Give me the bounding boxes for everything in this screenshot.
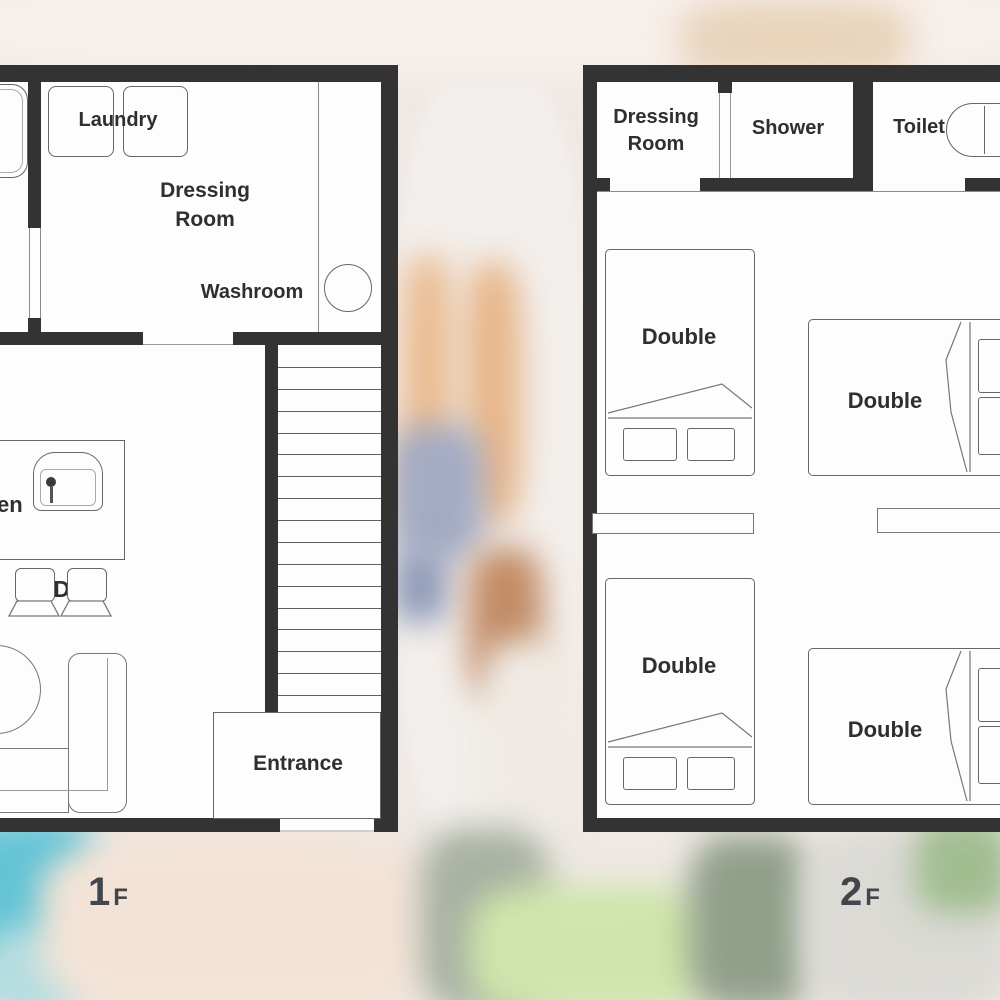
faucet-icon [46,477,56,487]
dressing-room-label-line2: Room [586,131,726,158]
door-opening [143,332,233,345]
bg-blob [40,835,440,1000]
bg-blob [915,818,1000,913]
sofa-cushion-line [107,658,108,790]
kitchen-label: Kitchen [0,492,32,518]
pillow-icon [978,397,1000,455]
dressing-room-label: Dressing Room [586,104,726,158]
wall-segment [381,65,398,832]
stair-tread [278,433,381,434]
toilet-tank-line [984,106,985,154]
dressing-room-label: Dressing Room [105,176,305,234]
chair-icon [15,568,55,602]
bg-blob [478,640,588,830]
kitchen-sink-basin [40,469,96,506]
floorplan-screenshot: Laundry Dressing Room Washroom Kitchen L… [0,0,1000,1000]
threshold-line [597,191,1000,192]
faucet-stem [50,487,53,503]
stair-tread [278,367,381,368]
pillow-icon [623,428,677,461]
floor-number: 1 [88,870,110,915]
bed-double: Double [605,249,755,476]
stair-tread [278,498,381,499]
wall-segment [0,65,398,82]
stair-tread [278,586,381,587]
bed-label: Double [815,388,955,414]
pillow-icon [687,428,735,461]
laundry-label: Laundry [40,109,196,132]
wall-segment [28,82,41,228]
partition-line [730,93,731,178]
stair-tread [278,673,381,674]
door-line [29,228,30,318]
chair-back-icon [8,600,60,617]
bg-blob [470,885,710,1000]
bed-double: Double [808,319,1000,476]
stair-tread [278,389,381,390]
washbasin-icon [324,264,372,312]
pillow-icon [687,757,735,790]
floor-number: 2 [840,870,862,915]
bg-blob [390,425,485,560]
stairwell-wall [265,332,278,714]
pillow-icon [978,339,1000,393]
toilet-icon [946,103,1000,157]
washroom-label: Washroom [152,281,352,304]
dressing-room-label-line2: Room [105,205,305,234]
wall-segment [965,178,1000,192]
stairs [278,345,381,717]
entrance-label: Entrance [228,752,368,776]
bathtub-inner-line [0,89,23,173]
stair-tread [278,629,381,630]
stair-tread [278,695,381,696]
low-shelf-icon [592,513,754,534]
bg-blob [393,548,448,623]
low-shelf-icon [877,508,1000,533]
wall-segment [700,178,873,192]
bg-blob [688,835,813,1000]
stair-tread [278,454,381,455]
wall-segment [583,818,1000,832]
entrance-door-opening [280,819,374,832]
door-line [40,228,41,318]
bed-label: Double [606,653,752,679]
bed-double: Double [605,578,755,805]
floor-label-2f: 2 F [840,870,880,915]
sofa-cushion-line [0,790,108,791]
stair-tread [278,411,381,412]
chair-icon [67,568,107,602]
stair-tread [278,608,381,609]
wall-segment [718,82,732,93]
wall-segment [853,82,873,192]
bed-label: Double [815,717,955,743]
dressing-room-label-line1: Dressing [105,176,305,205]
shower-label: Shower [733,117,843,140]
bed-label: Double [606,324,752,350]
floor-label-1f: 1 F [88,870,128,915]
pillow-icon [978,726,1000,784]
wall-segment [583,65,1000,82]
sofa-icon [0,748,69,813]
stair-tread [278,476,381,477]
pillow-icon [623,757,677,790]
bed-double: Double [808,648,1000,805]
chair-back-icon [60,600,112,617]
stair-tread [278,651,381,652]
pillow-icon [978,668,1000,722]
floor-letter: F [865,884,880,912]
wall-segment [28,318,41,345]
floor-letter: F [113,884,128,912]
wall-segment [583,178,610,192]
sofa-icon [68,653,127,813]
stair-tread [278,542,381,543]
stair-tread [278,564,381,565]
dressing-room-label-line1: Dressing [586,104,726,131]
stair-tread [278,520,381,521]
